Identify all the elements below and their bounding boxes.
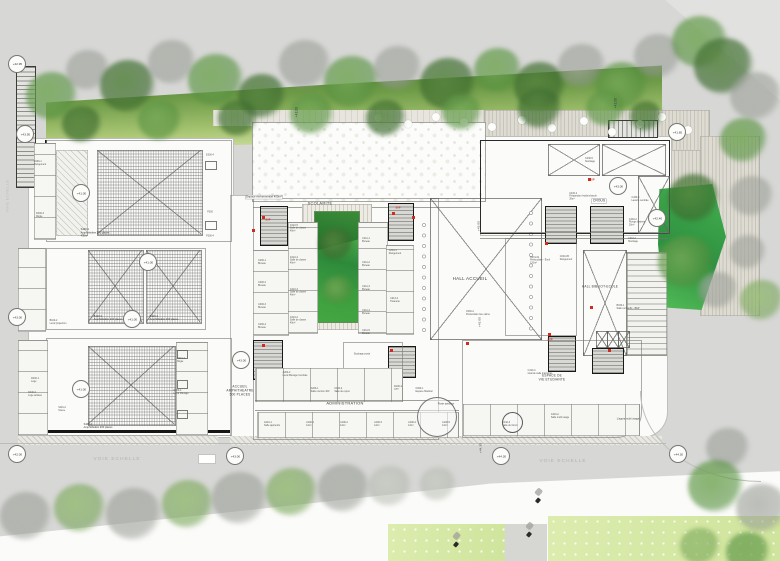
elevation-marker: +43.00 (609, 177, 627, 195)
tree (323, 276, 353, 304)
plan-label: VOIE ECHELLE (93, 456, 140, 462)
plan-label: A210-1 Salle apprentis (264, 421, 280, 427)
plan-label: C211-2 Bureau (362, 261, 370, 267)
elevation-marker: +42.40 (648, 209, 666, 227)
lawn (388, 524, 506, 561)
elevation-value: +41.00 (143, 260, 152, 263)
exit-marker (262, 216, 265, 219)
elevation-value: +44.30 (496, 454, 505, 457)
plan-label: D430-1 Loge (31, 377, 39, 383)
plan-label: D430-2 Loge artistes (28, 391, 42, 397)
tree (630, 101, 662, 130)
tree (730, 72, 780, 120)
plan-label: P300 (207, 211, 213, 214)
door-vestibule (205, 221, 217, 230)
plan-label: VOIE ECHELLE (6, 180, 11, 213)
plan-label: ACCUEIL AMPHITHEATRE 500 PLACES (226, 385, 253, 397)
tree (680, 528, 720, 561)
door-vestibule (177, 380, 188, 389)
plan-label: C211-4 Bureau (362, 309, 370, 315)
plan-label: C100-2 Salle de repos (334, 387, 349, 393)
plan-label: C030-2 Périscolaire lieu calme (466, 310, 490, 316)
plan-label: C400-3 Bureau (258, 303, 266, 309)
tree (740, 280, 780, 320)
plan-label: C400-2 Bureau (258, 281, 266, 287)
site-plan: SCOLARITEHALL ACCUEILHALL BIBLIOT-ECOLEC… (0, 0, 780, 561)
elevation-marker: +44.30 (669, 445, 687, 463)
tree (266, 468, 318, 516)
plan-label: C000-1 Espace Médical (416, 387, 433, 393)
plan-label: C410-4 Grande salle d'activités (528, 369, 553, 375)
plan-label: C210-5 Salle de classe 40m² (290, 224, 306, 232)
skylight (432, 113, 440, 121)
tree (442, 94, 482, 131)
elevation-value: +42.00 (12, 452, 21, 455)
elevation-value: +41.85 (672, 130, 681, 133)
wall-line (480, 232, 668, 233)
plan-label: C440-2 Plonge batterie 20m² (629, 218, 645, 226)
plan-label: B120-3 Amphithéâtre 200 places (94, 315, 123, 322)
elevation-value: +42.40 (652, 216, 661, 219)
tree (324, 56, 380, 108)
skylight (580, 117, 588, 125)
skylight (608, 128, 616, 136)
plan-label: C210-4 Salle de classe 40m² (290, 256, 306, 264)
plan-label: Stockage poste (354, 353, 371, 356)
plan-label: Porte tambour (438, 402, 454, 405)
elevation-marker: +43.00 (226, 447, 244, 465)
plan-label: A100-4 12m² (408, 421, 416, 427)
elevation-value: +43.00 (613, 184, 622, 187)
door-vestibule (177, 410, 188, 419)
tree (188, 54, 244, 106)
tree (420, 467, 456, 500)
plan-label: HALL BIBLIOT-ECOLE (582, 285, 618, 289)
plan-label: A100-1 12m² (306, 421, 314, 427)
tree (586, 90, 626, 127)
tree (212, 472, 268, 524)
plan-label: +43.00 (477, 221, 481, 231)
road-edge (0, 443, 666, 444)
room (505, 238, 577, 336)
room-row (386, 245, 414, 335)
plan-label: C211-1 Bureau (362, 237, 370, 243)
plan-label: Espace événementiel 400m² (245, 195, 282, 199)
exit-marker (588, 178, 591, 181)
elevation-marker: +41.00 (72, 184, 90, 202)
plan-label: ESPACE DE VIE ETUDIANTE (539, 374, 566, 382)
tree (720, 118, 768, 162)
plan-label: +42.00 (295, 107, 299, 118)
elevation-marker: +41.85 (668, 123, 686, 141)
skylight (488, 123, 496, 131)
paved-plaza (505, 524, 547, 561)
plan-label: A100-5 12m² (442, 421, 450, 427)
plan-label: A200-1 Salle réunion 100 (311, 387, 330, 393)
exit-label: SUP (396, 207, 401, 210)
plan-label: L'agora multi usage (617, 417, 640, 420)
plan-label: E300-4 (206, 154, 214, 157)
plan-label: VOIE ECHELLE (539, 458, 586, 464)
room-row (34, 143, 56, 240)
tree (62, 106, 102, 143)
tree (138, 100, 182, 140)
stair-core (260, 206, 288, 246)
exit-marker (548, 333, 551, 336)
column-row (421, 220, 428, 336)
plan-label: C213-2 Tisanerie (390, 297, 400, 303)
exit-marker (390, 349, 393, 352)
tree (218, 100, 258, 137)
plan-label: S100-2 Amphithéâtre 300 places (84, 423, 113, 430)
room-row (462, 404, 640, 436)
plan-label: C400-1 Bureau (258, 259, 266, 265)
sightlines (97, 150, 201, 234)
plan-label: C211-3 Bureau (362, 285, 370, 291)
elevation-marker: +42.95 (8, 55, 26, 73)
elevation-value: +43.00 (230, 454, 239, 457)
exit-marker (262, 344, 265, 347)
exit-label: SUP (266, 219, 271, 222)
tree (374, 46, 422, 90)
plan-label: SCOLARITE (308, 202, 333, 207)
plan-label: D410-2 Régie (177, 357, 185, 363)
plan-label: D400-1 Rangement (34, 160, 46, 166)
tree (0, 492, 52, 540)
room (343, 342, 403, 370)
tree (730, 235, 766, 268)
tree (366, 100, 406, 137)
plan-label: A100-3 12m² (374, 421, 382, 427)
exit-marker (590, 306, 593, 309)
exit-marker (252, 229, 255, 232)
elevation-value: +41.00 (76, 191, 85, 194)
elevation-marker: +41.00 (139, 253, 157, 271)
event-hall-floor (252, 122, 486, 202)
plan-label: +42.00 (614, 98, 618, 109)
elevation-value: +43.00 (236, 358, 245, 361)
plan-label: P300-4 (206, 235, 214, 238)
plan-label: C210-2 Salle de classe 40m² (290, 316, 306, 324)
plan-label: ADMINISTRATION (326, 402, 363, 407)
elevation-value: +42.95 (12, 62, 21, 65)
room-row (18, 340, 48, 436)
elevation-marker: +41.00 (72, 380, 90, 398)
exit-marker (466, 342, 469, 345)
tree (698, 272, 738, 309)
exit-label: SUP (548, 339, 553, 342)
exit-marker (392, 212, 395, 215)
road-sign (198, 454, 216, 464)
plan-label: C031-01 Périscolaire - Éveil 120m² (530, 256, 550, 264)
plan-label: C430-3 Laverie centrale (631, 196, 648, 202)
tree (54, 484, 106, 532)
plan-label: S110-2 Scène (58, 406, 66, 412)
tree (368, 466, 412, 506)
plan-label: C430-5 Stockage (585, 157, 595, 163)
room-row (255, 368, 403, 402)
elevation-marker: +42.00 (8, 445, 26, 463)
elevation-marker: +43.00 (232, 351, 250, 369)
tree (106, 488, 162, 540)
plan-label: D410-4 Local Ménage (173, 389, 188, 395)
plan-label: B120-4 Amphithéâtre 200 places (150, 315, 179, 322)
plan-label: C430-2 Préparation froide/chaude 35m² (569, 192, 597, 200)
elevation-value: +43.95 (20, 132, 29, 135)
plan-label: C410-2 Salle multi usage (551, 413, 569, 419)
elevation-marker: +43.00 (8, 308, 26, 326)
plan-label: B100-2 Local projection (50, 319, 67, 325)
exit-marker (608, 349, 611, 352)
tree (318, 464, 370, 512)
elevation-value: +44.30 (673, 452, 682, 455)
exit-marker (412, 216, 415, 219)
tree (518, 88, 562, 128)
elevation-value: +41.00 (76, 387, 85, 390)
room (602, 144, 666, 176)
plan-label: +44.30 (479, 443, 483, 453)
plan-label: C410-2 Stockage (628, 237, 638, 243)
plan-label: C210-3 Salle de classe 40m² (290, 288, 306, 296)
door-vestibule (205, 161, 217, 170)
tree (736, 484, 780, 532)
elevation-marker: +43.95 (16, 125, 34, 143)
plan-label: +43.00 (478, 317, 482, 327)
tree (319, 228, 353, 259)
elevation-marker: +44.30 (492, 447, 510, 465)
plan-label: C040-05 Rangement (560, 255, 572, 261)
tree (162, 480, 214, 528)
tree (668, 174, 720, 222)
elevation-value: +43.00 (12, 315, 21, 318)
plan-label: A100-2 12m² (340, 421, 348, 427)
plan-label: HALL ACCUEIL (453, 276, 488, 282)
plan-label: C211-5 Bureau (362, 329, 370, 335)
plan-label: D100-2 CTT (394, 385, 402, 391)
plan-label: A202-2 Local Ménage Centrale (283, 371, 308, 377)
plan-label: C410-3 Salle du forum (502, 421, 517, 427)
plan-label: C213-1 Rangement (389, 249, 401, 255)
elevation-marker: +41.00 (123, 310, 141, 328)
plan-label: B030-1 Salle réchauffe - BEP (617, 304, 640, 310)
plan-label: C400-4 Bureau (258, 323, 266, 329)
exit-marker (545, 242, 548, 245)
stair-core (388, 203, 414, 241)
tree (730, 176, 774, 216)
sightlines (88, 346, 174, 424)
plan-label: S100-1 Amphithéâtre 500 places 430m² (81, 228, 110, 238)
plan-label: D400-3 Régie (36, 212, 44, 218)
elevation-value: +41.00 (127, 317, 136, 320)
